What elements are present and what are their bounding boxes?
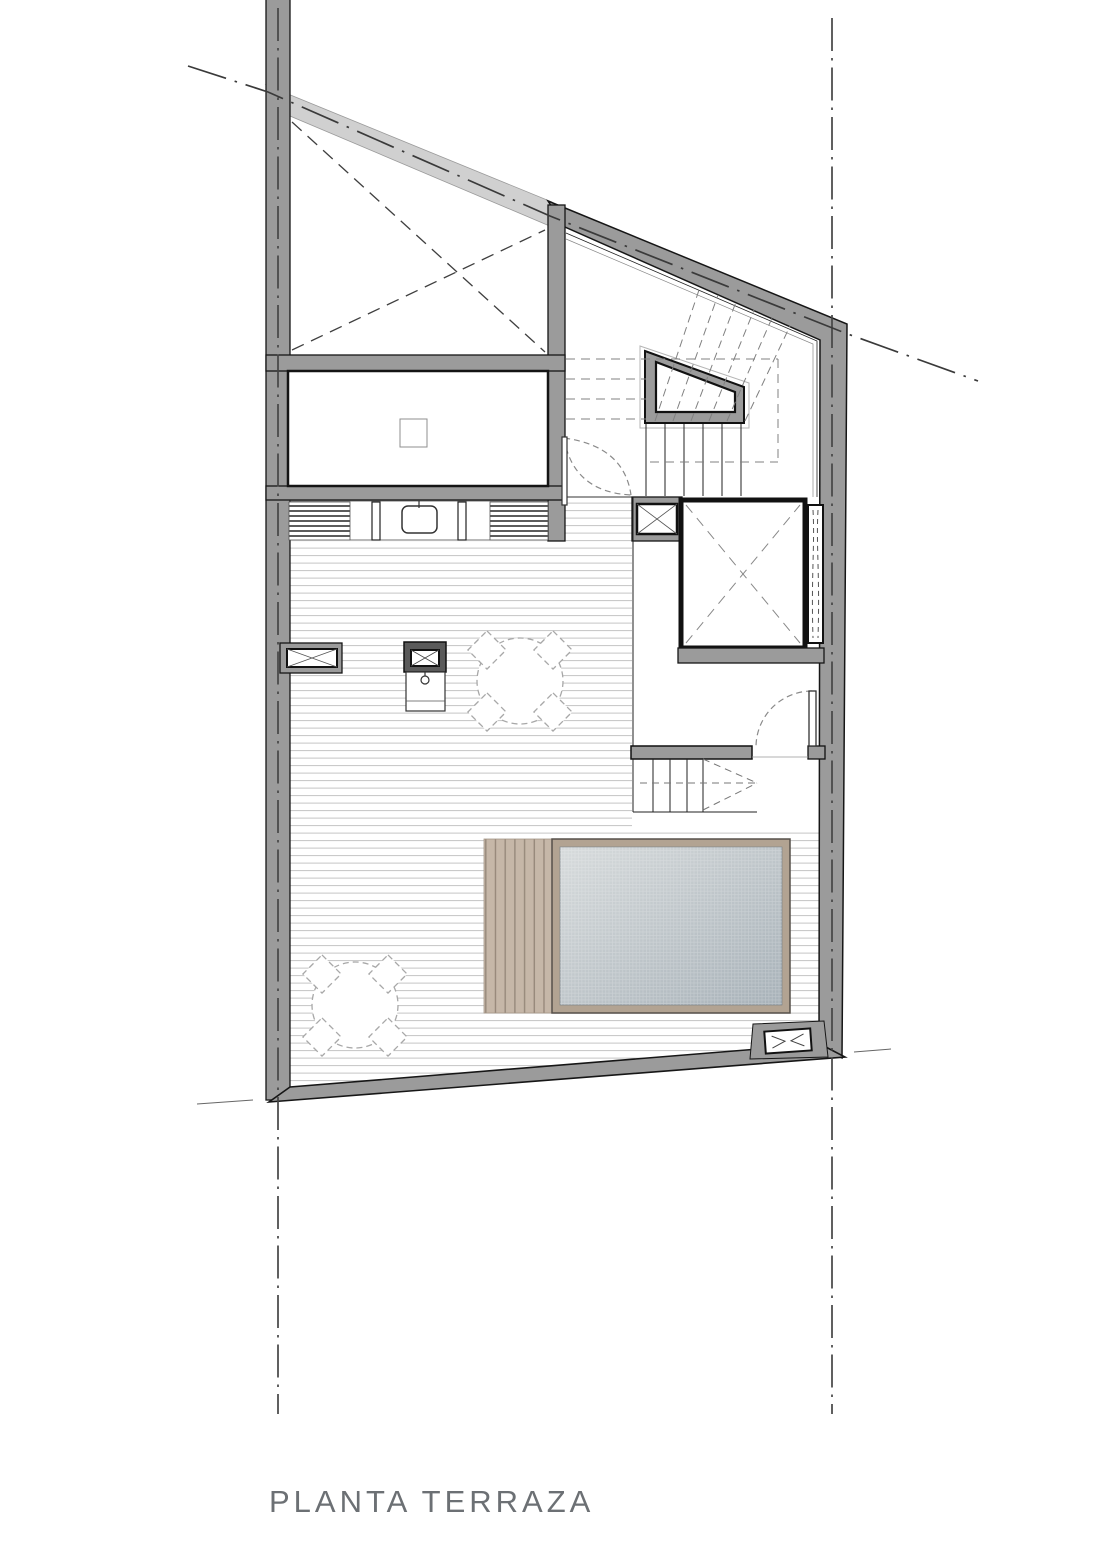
- dining-table-lower: [303, 955, 407, 1056]
- boundary-tick-left: [197, 1100, 253, 1104]
- lobby-door: [756, 691, 816, 747]
- counter-grille-left: [289, 502, 350, 540]
- wall-vent: [280, 643, 342, 673]
- parapet-wall-sloped: [266, 85, 552, 227]
- small-shaft: [637, 504, 677, 534]
- room-wall-top: [266, 355, 565, 371]
- landing-wall: [631, 746, 752, 759]
- stair-treads: [646, 424, 741, 496]
- sink: [402, 506, 437, 533]
- elevator-shaft: [681, 500, 805, 648]
- roof-hatch-square: [400, 419, 427, 447]
- pool-wood-platform: [484, 839, 552, 1013]
- stairs-down: [633, 759, 757, 812]
- storage-room: [288, 371, 548, 486]
- stair-direction-arrow: [640, 759, 757, 810]
- boundary-tick-right: [854, 1049, 891, 1052]
- elevator-block: [631, 497, 825, 759]
- floor-plan-drawing: [0, 0, 1100, 1556]
- grill-station: [404, 642, 446, 711]
- room-wall-bottom: [266, 486, 565, 500]
- counter-grille-right: [490, 502, 548, 540]
- door-leaf: [562, 437, 567, 505]
- door-leaf: [809, 691, 816, 746]
- outdoor-kitchen-counter: [289, 501, 548, 540]
- swimming-pool: [484, 839, 790, 1013]
- plan-title: PLANTA TERRAZA: [269, 1484, 594, 1520]
- stair-room-door: [562, 437, 631, 505]
- door-jamb-nub: [808, 746, 825, 759]
- duct-shaft: [808, 505, 823, 643]
- dining-table-upper: [468, 631, 572, 731]
- pool-vent: [764, 1028, 811, 1053]
